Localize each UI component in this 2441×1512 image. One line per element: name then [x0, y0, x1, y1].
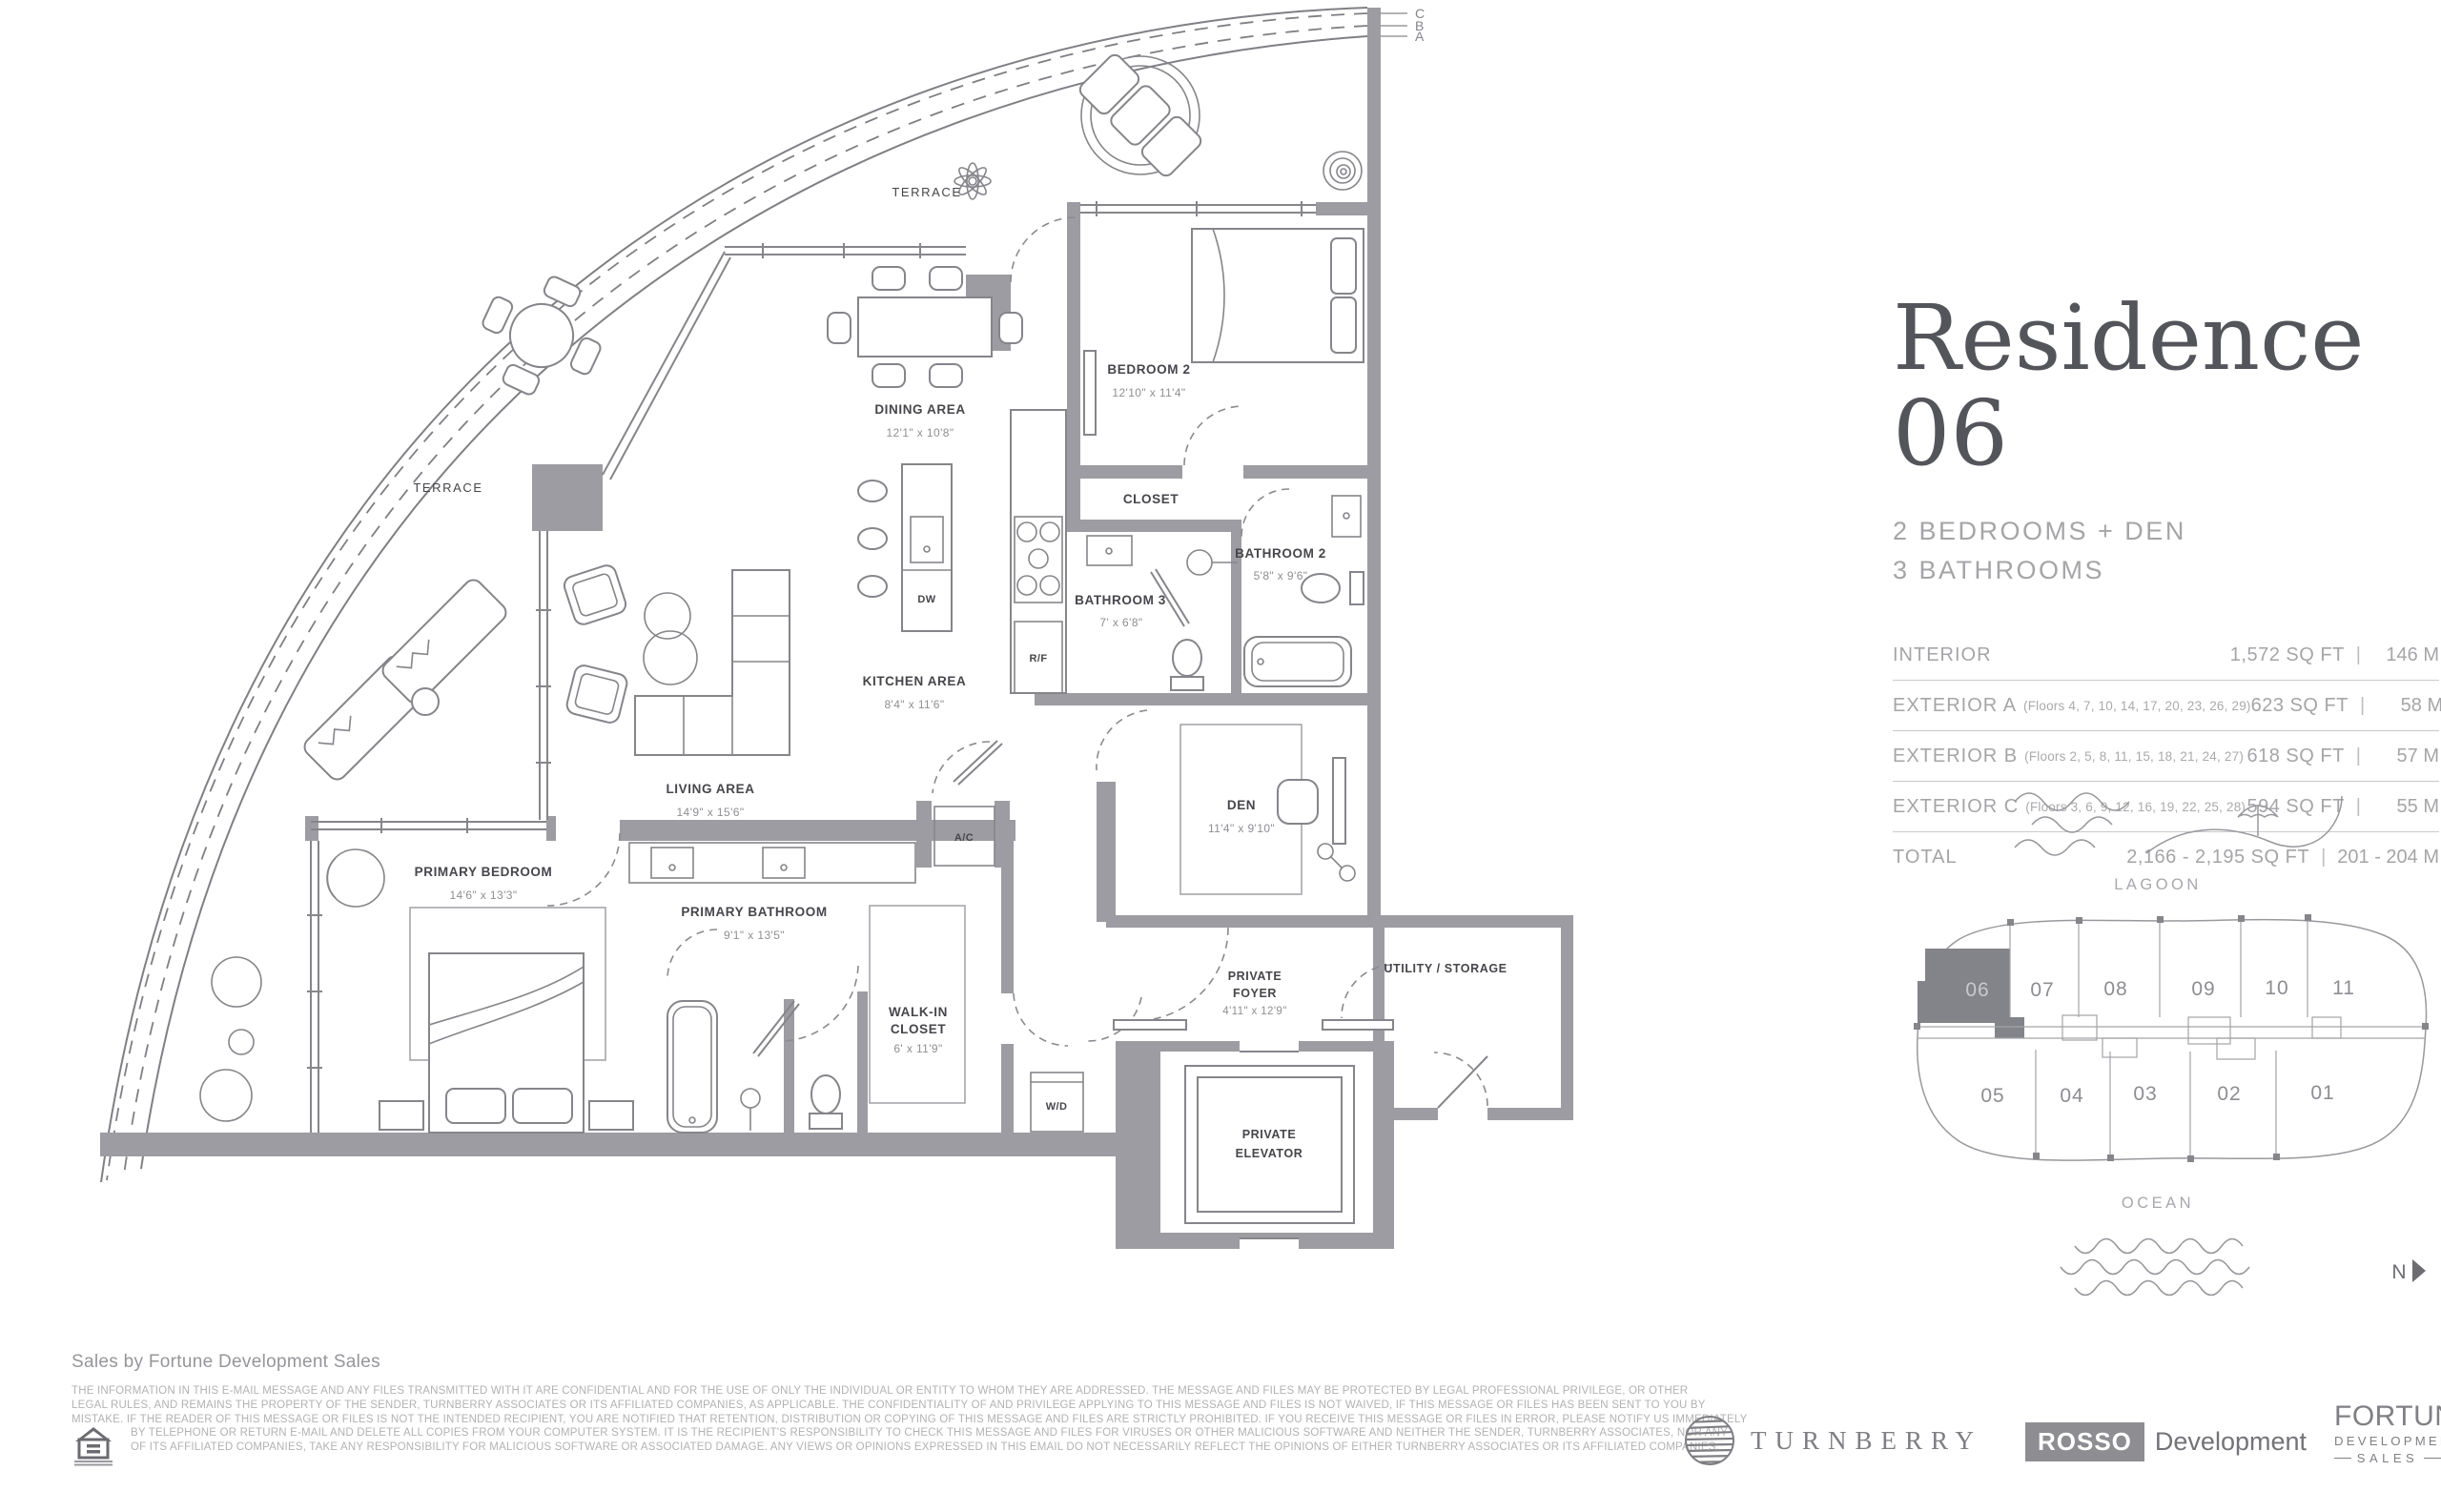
rosso-development-text: Development [2155, 1427, 2307, 1457]
private-foyer-label: PRIVATE [1228, 970, 1282, 983]
spec-row-exterior-a: EXTERIOR A (Floors 4, 7, 10, 14, 17, 20,… [1893, 681, 2439, 731]
unit-03: 03 [2133, 1083, 2157, 1105]
svg-text:N: N [2391, 1261, 2406, 1283]
spec-row-interior: INTERIOR 1,572 SQ FT | 146 M [1893, 630, 2439, 681]
unit-08: 08 [2103, 978, 2127, 1000]
svg-text:5'8" x 9'6": 5'8" x 9'6" [1254, 569, 1308, 582]
svg-text:8'4" x 11'6": 8'4" x 11'6" [884, 698, 944, 711]
living-label: LIVING AREA [666, 782, 754, 796]
unit-09: 09 [2191, 978, 2215, 1000]
bedroom2-label: BEDROOM 2 [1107, 362, 1190, 377]
unit-04: 04 [2060, 1085, 2083, 1107]
terrace-round-table-set [463, 257, 621, 415]
lagoon-label: LAGOON [2114, 876, 2202, 893]
kitchen-label: KITCHEN AREA [863, 674, 967, 688]
terrace-daybed [1077, 52, 1204, 179]
bathrooms-line: 3 BATHROOMS [1893, 551, 2439, 590]
rf-label: R/F [1030, 653, 1048, 664]
unit-02: 02 [2217, 1083, 2241, 1105]
svg-text:6' x 11'9": 6' x 11'9" [893, 1042, 942, 1055]
foyer-door-panels [1114, 1020, 1393, 1030]
ocean-label: OCEAN [2122, 1195, 2194, 1212]
terrace-planters [200, 957, 261, 1121]
unit-01: 01 [2310, 1082, 2334, 1104]
unit-10: 10 [2265, 977, 2288, 999]
ac-label: A/C [954, 832, 974, 844]
svg-text:FOYER: FOYER [1233, 987, 1277, 1000]
floor-plan: C B A [0, 0, 1621, 1335]
bathroom2-fixtures [1244, 496, 1364, 686]
svg-text:14'6" x 13'3": 14'6" x 13'3" [449, 889, 517, 902]
unit-05: 05 [1980, 1085, 2004, 1107]
brand-logos: TURNBERRY ROSSO Development FORTUNE DEVE… [1684, 1400, 2441, 1485]
svg-text:12'1" x 10'8": 12'1" x 10'8" [886, 426, 954, 439]
sales-by-line: Sales by Fortune Development Sales [72, 1352, 380, 1373]
primary-bedroom-label: PRIMARY BEDROOM [415, 865, 553, 879]
dining-label: DINING AREA [874, 402, 965, 417]
turnberry-globe-icon [1684, 1415, 1735, 1466]
utility-label: UTILITY / STORAGE [1384, 962, 1507, 975]
section-line-ticks: C B A [1381, 6, 1425, 44]
spiral-plant-icon [1323, 152, 1362, 190]
bedrooms-line: 2 BEDROOMS + DEN [1893, 512, 2439, 551]
bathroom3-fixtures [1087, 536, 1238, 690]
terrace-top-label: TERRACE [892, 185, 961, 199]
fortune-development-sales-logo: FORTUNE DEVELOPMENT SALES [2334, 1401, 2441, 1465]
unit-summary: 2 BEDROOMS + DEN 3 BATHROOMS [1893, 512, 2439, 590]
compass-north-icon: N [2391, 1259, 2426, 1283]
svg-text:11'4" x 9'10": 11'4" x 9'10" [1208, 822, 1275, 835]
unit-11: 11 [2332, 977, 2355, 999]
unit-numbers: 06 07 08 09 10 11 05 04 03 02 01 [1965, 977, 2355, 1107]
svg-text:12'10" x 11'4": 12'10" x 11'4" [1112, 386, 1185, 399]
private-elevator: PRIVATE ELEVATOR [1116, 1041, 1394, 1249]
primary-bathroom-label: PRIMARY BATHROOM [681, 905, 827, 919]
den-label: DEN [1227, 798, 1256, 812]
svg-text:14'9" x 15'6": 14'9" x 15'6" [676, 806, 744, 819]
section-line-a-label: A [1415, 29, 1425, 44]
svg-text:4'11" x 12'9": 4'11" x 12'9" [1222, 1006, 1286, 1017]
bedroom2-furniture [1084, 229, 1364, 435]
page-title: Residence 06 [1893, 291, 2439, 481]
bathroom2-label: BATHROOM 2 [1235, 546, 1326, 561]
legal-disclaimer: THE INFORMATION IN THIS E-MAIL MESSAGE A… [72, 1384, 1614, 1455]
closet-label: CLOSET [1123, 492, 1179, 506]
living-furniture [562, 563, 790, 755]
terrace-left-label: TERRACE [413, 480, 482, 495]
spec-row-exterior-b: EXTERIOR B (Floors 2, 5, 8, 11, 15, 18, … [1893, 731, 2439, 782]
rosso-development-logo: ROSSO Development [2025, 1422, 2307, 1461]
building-key-plan: LAGOON 06 07 08 09 10 11 [1902, 777, 2441, 1297]
turnberry-logo: TURNBERRY [1684, 1415, 1982, 1466]
svg-text:9'1" x 13'5": 9'1" x 13'5" [724, 929, 785, 942]
den-furniture [1180, 725, 1355, 894]
wd-label: W/D [1046, 1101, 1068, 1113]
svg-text:7' x 6'8": 7' x 6'8" [1099, 616, 1142, 629]
unit-06: 06 [1965, 979, 1989, 1001]
ocean-waves-icon [2061, 1239, 2249, 1296]
bathroom3-label: BATHROOM 3 [1075, 593, 1166, 607]
private-elevator-label-1: PRIVATE [1242, 1128, 1297, 1141]
dw-label: DW [917, 594, 935, 605]
private-elevator-label-2: ELEVATOR [1236, 1147, 1303, 1160]
primary-bathroom-fixtures [629, 843, 915, 1133]
kitchen-fixtures [858, 410, 1066, 693]
rosso-wordmark: ROSSO [2025, 1422, 2144, 1461]
umbrella-icon [2238, 805, 2278, 836]
walkin-closet-label: WALK-IN [889, 1005, 948, 1019]
floorplan-sheet: { "colors": { "wall": "#9c9ca2", "line":… [0, 0, 2441, 1512]
turnberry-wordmark: TURNBERRY [1751, 1426, 1982, 1456]
lagoon-waves-icon [2015, 793, 2342, 855]
terrace-lounge-chairs [300, 576, 509, 783]
svg-text:CLOSET: CLOSET [891, 1022, 947, 1036]
unit-07: 07 [2030, 979, 2054, 1001]
